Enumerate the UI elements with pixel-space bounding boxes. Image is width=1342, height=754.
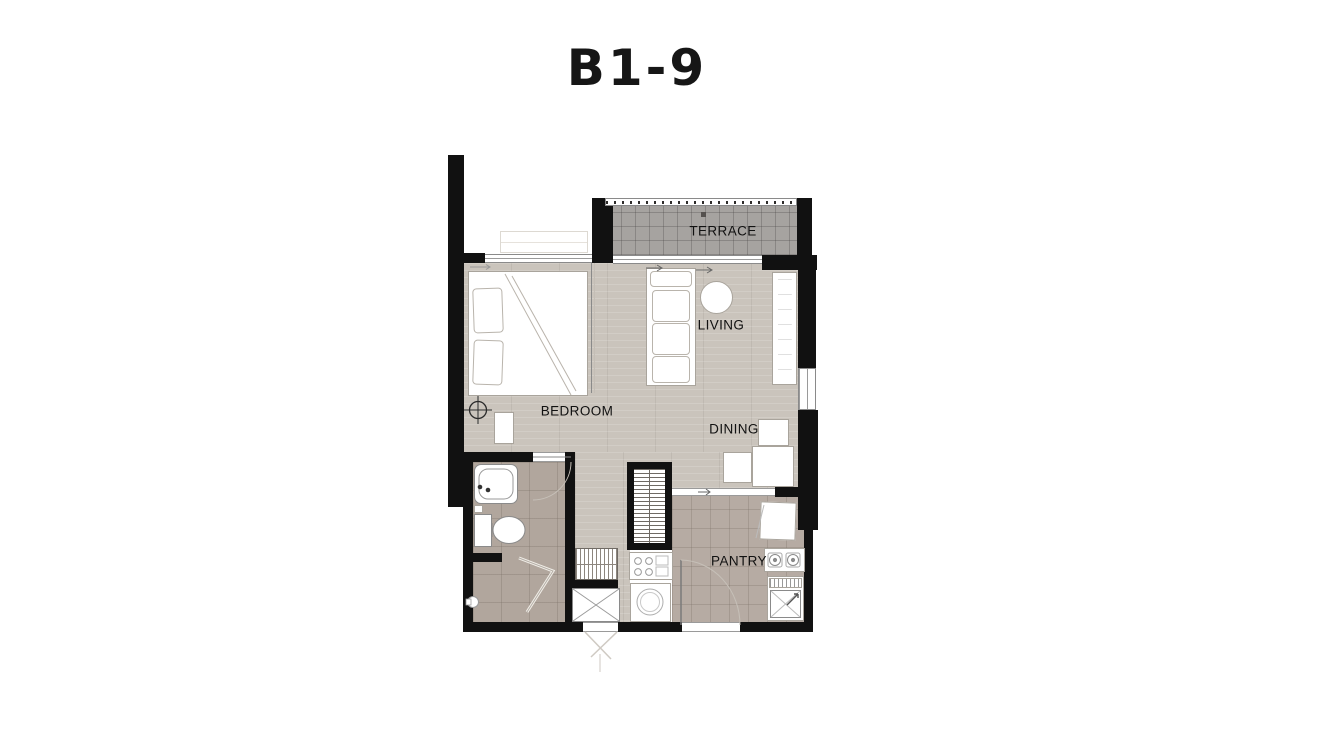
wall-bottom-2 bbox=[618, 622, 682, 632]
cooktop bbox=[629, 552, 673, 580]
dining-chair bbox=[758, 419, 789, 446]
sliding-partition-line-2 bbox=[594, 263, 595, 393]
living-side-window bbox=[798, 368, 816, 410]
entry-door-swing bbox=[585, 632, 617, 672]
washbasin bbox=[474, 464, 518, 504]
dining-table bbox=[752, 446, 794, 487]
sofa-cushion bbox=[652, 323, 690, 355]
round-side-table bbox=[700, 281, 733, 314]
wall-bottom-3 bbox=[740, 622, 813, 632]
dining-pantry-opening bbox=[672, 488, 775, 496]
wall-bottom-1 bbox=[463, 622, 583, 632]
wall-terrace-left-post bbox=[592, 198, 613, 263]
room-label-bedroom: BEDROOM bbox=[541, 404, 614, 419]
sofa-cushion bbox=[652, 290, 690, 322]
terrace-railing bbox=[605, 198, 797, 206]
exterior-planter bbox=[500, 231, 588, 253]
room-label-dining: DINING bbox=[709, 422, 759, 437]
refrigerator bbox=[759, 501, 796, 540]
sliding-partition-line bbox=[591, 263, 592, 393]
nightstand bbox=[494, 412, 514, 444]
wall-stub-top-left bbox=[463, 253, 485, 263]
wardrobe bbox=[575, 548, 618, 580]
dining-chair bbox=[723, 452, 752, 483]
wall-stub-dining-pantry bbox=[775, 487, 798, 497]
wall-terrace-right-post bbox=[797, 198, 812, 255]
pillow bbox=[472, 339, 504, 385]
bathroom-door-opening bbox=[533, 452, 565, 462]
washing-machine bbox=[630, 583, 671, 622]
toilet-tank bbox=[474, 514, 492, 547]
wall-right-mid bbox=[798, 410, 818, 530]
sofa-cushion bbox=[652, 356, 690, 383]
unit-title: B1-9 bbox=[567, 39, 707, 97]
living-sliding-door bbox=[613, 255, 762, 264]
pantry-door-opening bbox=[682, 622, 740, 632]
sink-drainer bbox=[769, 578, 802, 588]
wall-living-top-right bbox=[762, 255, 817, 270]
two-burner-hob bbox=[764, 548, 805, 572]
wall-bathroom-left bbox=[463, 460, 473, 632]
wall-left-outer bbox=[448, 155, 464, 507]
entry-door-opening bbox=[583, 622, 618, 632]
wall-right-upper bbox=[798, 270, 816, 368]
sofa-armrest bbox=[650, 271, 692, 287]
wall-right-lower bbox=[804, 530, 813, 632]
kitchen-sink-basin bbox=[770, 590, 801, 618]
shaft-louvers bbox=[634, 469, 665, 543]
floor-plan-page: B1-9 bbox=[0, 0, 1342, 754]
bedroom-window bbox=[485, 254, 592, 263]
service-shaft bbox=[627, 462, 672, 550]
shaft-box bbox=[572, 588, 620, 622]
pillow bbox=[472, 287, 504, 333]
room-label-living: LIVING bbox=[698, 318, 745, 333]
room-label-terrace: TERRACE bbox=[689, 224, 756, 239]
room-label-pantry: PANTRY bbox=[711, 554, 767, 569]
tv-console bbox=[772, 272, 797, 385]
plumbing-fitting bbox=[474, 505, 483, 513]
wall-bathroom-top bbox=[463, 452, 533, 462]
